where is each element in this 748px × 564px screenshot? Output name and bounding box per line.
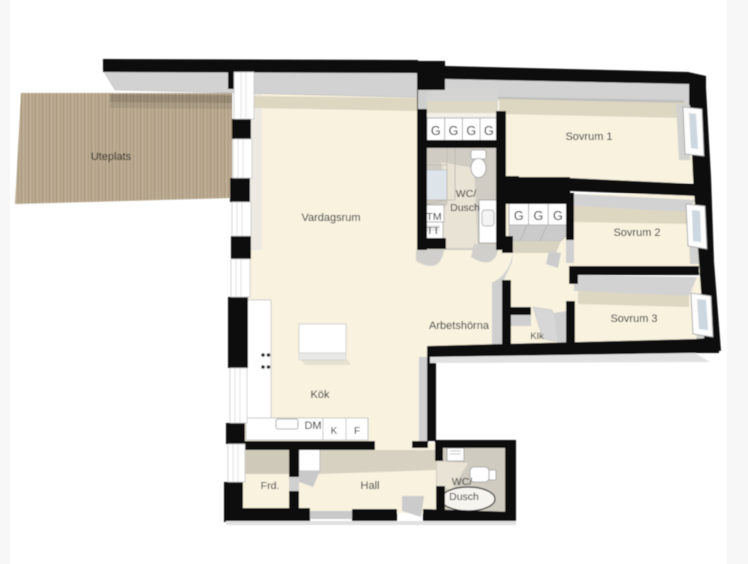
svg-text:Frd.: Frd.: [261, 480, 280, 492]
svg-text:WC/: WC/: [456, 188, 476, 200]
svg-text:G: G: [449, 124, 459, 138]
svg-text:TM: TM: [426, 211, 441, 223]
svg-text:DM: DM: [304, 420, 321, 432]
svg-text:Dusch: Dusch: [449, 491, 479, 503]
svg-text:Kök: Kök: [311, 389, 330, 401]
svg-text:TT: TT: [427, 225, 440, 237]
svg-text:Sovrum 2: Sovrum 2: [613, 227, 660, 239]
svg-text:Hall: Hall: [361, 480, 380, 492]
svg-text:G: G: [484, 124, 494, 138]
svg-text:Uteplats: Uteplats: [91, 151, 132, 163]
svg-text:Arbetshörna: Arbetshörna: [429, 320, 490, 332]
svg-text:Sovrum 1: Sovrum 1: [565, 131, 612, 143]
svg-text:G: G: [553, 209, 563, 223]
svg-text:Dusch: Dusch: [450, 202, 480, 214]
svg-text:G: G: [466, 124, 476, 138]
svg-text:F: F: [354, 426, 360, 437]
svg-text:G: G: [431, 124, 441, 138]
svg-text:Vardagsrum: Vardagsrum: [301, 212, 360, 224]
svg-text:K: K: [331, 426, 338, 437]
svg-text:Klk: Klk: [530, 331, 543, 342]
svg-text:WC/: WC/: [452, 476, 472, 488]
svg-text:G: G: [514, 209, 524, 223]
svg-text:Sovrum 3: Sovrum 3: [610, 313, 657, 325]
svg-text:G: G: [534, 209, 544, 223]
